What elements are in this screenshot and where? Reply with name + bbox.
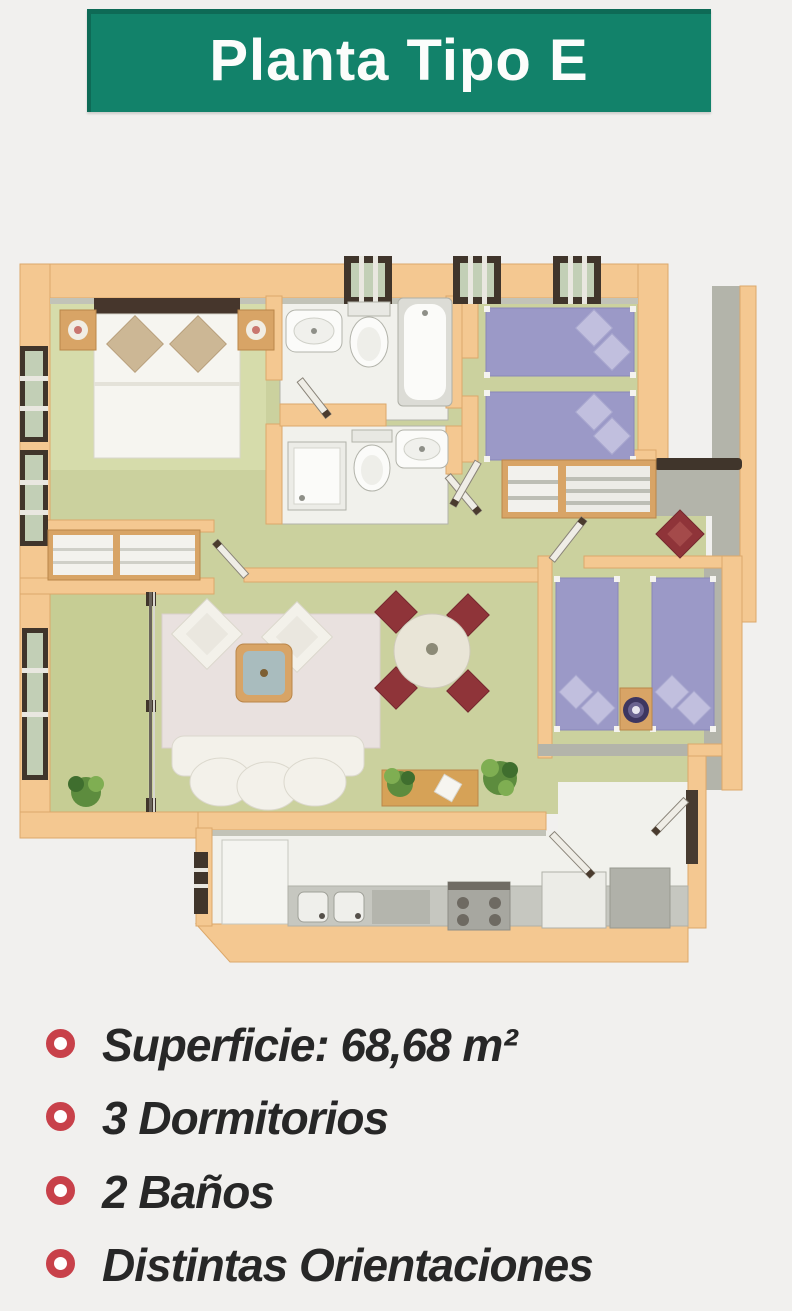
feature-text: 3 Dormitorios [102, 1091, 388, 1145]
wall-bedroom3-bottom-tan [688, 744, 722, 756]
wall-between-baths [280, 404, 386, 426]
toilet [348, 302, 390, 367]
lamp-center [632, 706, 640, 714]
twin-bed [650, 576, 716, 732]
fridge [222, 840, 288, 924]
wall-bedroom3-bottom-gray [538, 744, 706, 756]
window-top-2 [453, 256, 501, 304]
wall-bedroom2-left-b [462, 396, 478, 462]
feature-item: Superficie: 68,68 m² [46, 1018, 766, 1072]
sink-drain [311, 328, 317, 334]
wall-right-upper [638, 264, 668, 476]
bullet-icon [46, 1249, 75, 1278]
bullet-icon [46, 1102, 75, 1131]
closet [502, 460, 656, 518]
stove [448, 882, 510, 930]
sofa [172, 736, 364, 810]
twin-bed [484, 390, 636, 462]
floor-plan [0, 255, 792, 967]
page-title: Planta Tipo E [209, 27, 588, 94]
twin-bed [484, 306, 636, 378]
table-centerpiece [426, 643, 438, 655]
window-top-1 [344, 256, 392, 304]
sink [396, 430, 448, 468]
wall-terrace-bottom [20, 812, 202, 838]
drainboard [372, 890, 430, 924]
bathtub [398, 298, 452, 406]
corridor-wall-slab [656, 470, 732, 516]
bed-fold [94, 382, 240, 386]
lamp-center [252, 326, 260, 334]
twin-bed [554, 576, 620, 732]
page-title-banner: Planta Tipo E [87, 9, 711, 112]
bedroom-3-right-wall [722, 556, 742, 790]
window-kitchen [194, 852, 208, 914]
headboard [94, 298, 240, 314]
window-top-3 [553, 256, 601, 304]
window-master-left-2 [20, 450, 48, 546]
feature-text: 2 Baños [102, 1165, 274, 1219]
entry-floor [558, 782, 688, 836]
kitchen-wall-lip [206, 830, 546, 836]
bullet-icon [46, 1176, 75, 1205]
appliance [542, 872, 606, 928]
features-list: Superficie: 68,68 m² 3 Dormitorios 2 Bañ… [46, 1018, 766, 1311]
appliance [610, 868, 670, 928]
feature-text: Distintas Orientaciones [102, 1238, 593, 1292]
wall-hall-living [244, 568, 548, 582]
wall-bedroom3-left [538, 556, 552, 758]
window-terrace [22, 628, 48, 780]
kitchen-top-wall [198, 812, 546, 830]
feature-item: 3 Dormitorios [46, 1091, 766, 1145]
lamp-center [74, 326, 82, 334]
shower [288, 442, 346, 510]
wall-bedroom2-left-a [462, 296, 478, 358]
bedroom-2 [484, 306, 656, 518]
toilet [352, 430, 392, 491]
corridor-rail [654, 458, 742, 470]
feature-item: 2 Baños [46, 1165, 766, 1219]
coffee-table [236, 644, 292, 702]
wall-master-bath-2 [266, 424, 282, 524]
bullet-icon [46, 1029, 75, 1058]
wardrobe-master [48, 530, 200, 580]
kitchen-bottom-wall [196, 924, 688, 962]
window-master-left-1 [20, 346, 48, 442]
feature-item: Distintas Orientaciones [46, 1238, 766, 1292]
feature-text: Superficie: 68,68 m² [102, 1018, 517, 1072]
wall-bedroom3-top [584, 556, 722, 568]
